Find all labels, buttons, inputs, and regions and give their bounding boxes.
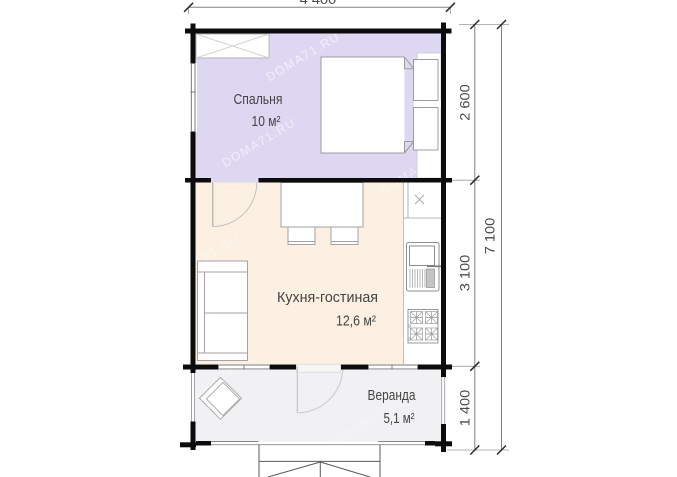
svg-text:Веранда: Веранда [368,388,417,404]
svg-text:1 400: 1 400 [458,390,473,427]
svg-text:Спальня: Спальня [234,92,283,108]
svg-text:Кухня-гостиная: Кухня-гостиная [277,290,378,306]
svg-text:3 100: 3 100 [458,255,473,292]
svg-text:2 600: 2 600 [458,84,473,121]
svg-text:12,6 м²: 12,6 м² [336,314,376,330]
svg-text:4 400: 4 400 [300,0,337,7]
svg-text:10 м²: 10 м² [252,114,281,130]
svg-text:7 100: 7 100 [483,218,498,255]
svg-text:5,1 м²: 5,1 м² [384,411,415,427]
